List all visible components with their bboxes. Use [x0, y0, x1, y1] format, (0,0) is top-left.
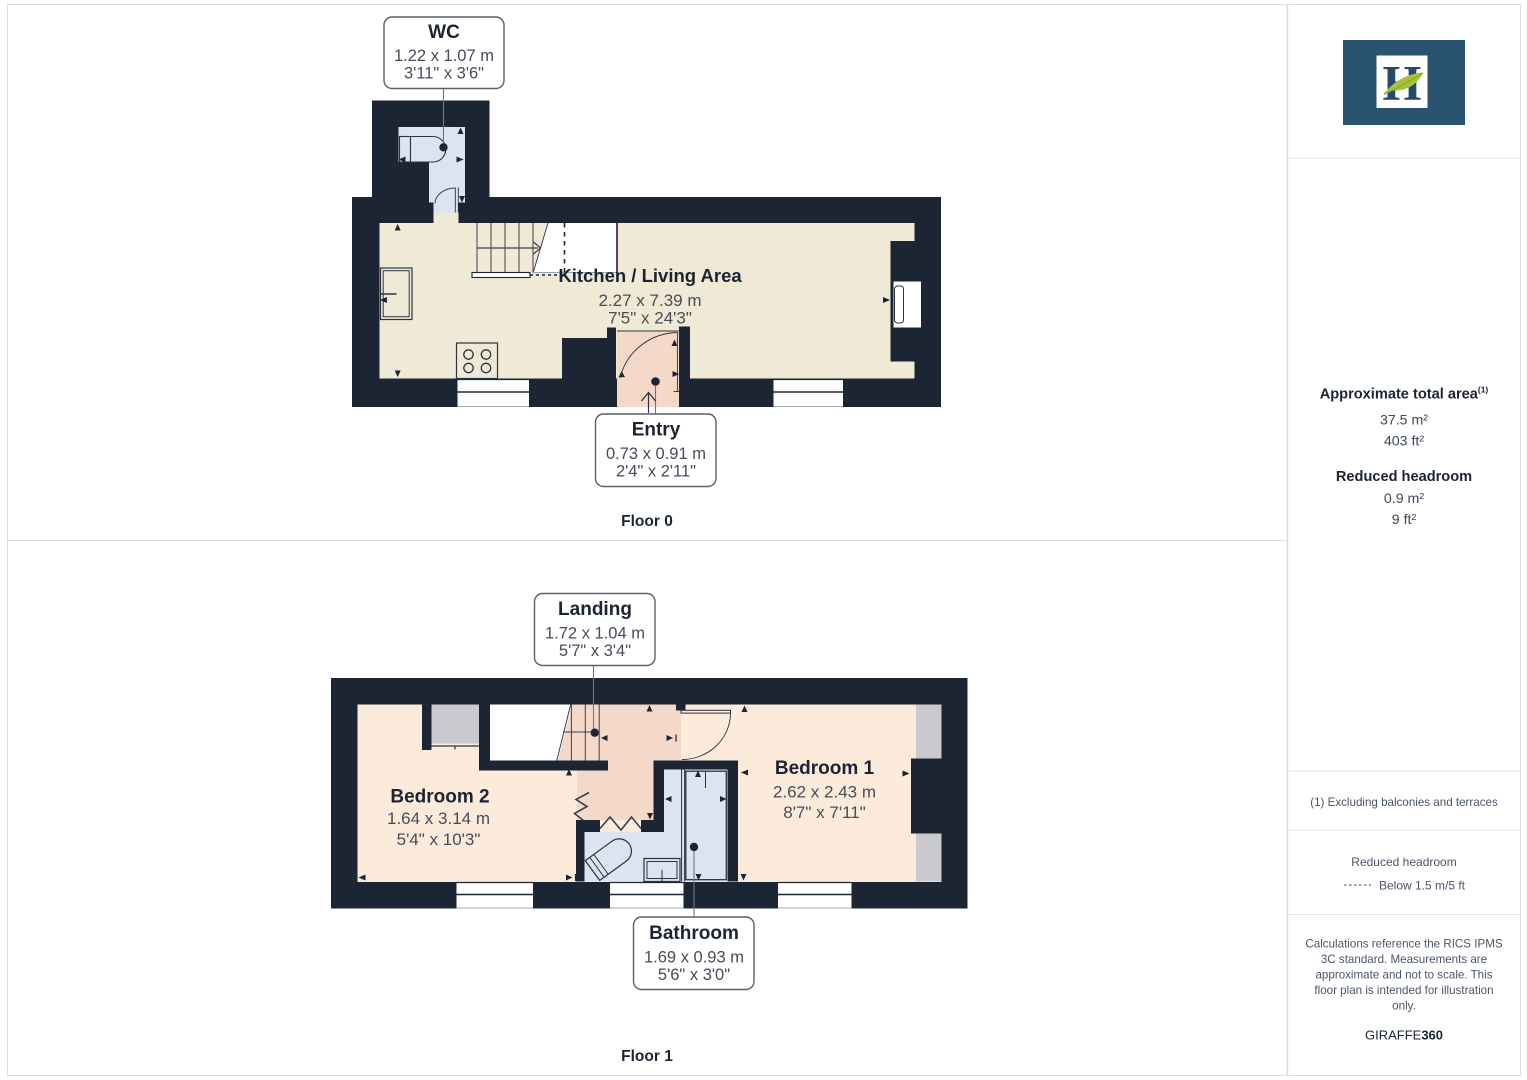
- svg-text:0.9 m²: 0.9 m²: [1384, 491, 1424, 507]
- svg-text:Reduced headroom: Reduced headroom: [1336, 469, 1472, 485]
- svg-text:8'7" x 7'11": 8'7" x 7'11": [783, 803, 866, 822]
- svg-text:Bedroom 2: Bedroom 2: [390, 787, 489, 808]
- svg-text:1.64 x 3.14 m: 1.64 x 3.14 m: [387, 809, 490, 828]
- svg-text:5'7" x 3'4": 5'7" x 3'4": [559, 642, 631, 660]
- svg-text:2.62 x 2.43 m: 2.62 x 2.43 m: [773, 783, 876, 802]
- svg-text:WC: WC: [428, 22, 460, 43]
- svg-text:Bathroom: Bathroom: [649, 923, 739, 944]
- svg-text:5'4" x 10'3": 5'4" x 10'3": [397, 830, 481, 849]
- svg-text:Reduced headroom: Reduced headroom: [1351, 855, 1456, 869]
- svg-text:2.27 x 7.39 m: 2.27 x 7.39 m: [598, 291, 701, 310]
- svg-text:3'11" x 3'6": 3'11" x 3'6": [404, 65, 484, 83]
- svg-text:GIRAFFE360: GIRAFFE360: [1365, 1028, 1443, 1043]
- svg-text:Entry: Entry: [632, 420, 681, 441]
- svg-text:(1) Excluding balconies and te: (1) Excluding balconies and terraces: [1310, 796, 1498, 809]
- svg-text:Approximate total area(1): Approximate total area(1): [1320, 385, 1489, 403]
- svg-text:Floor 1: Floor 1: [621, 1048, 673, 1065]
- svg-text:3C standard. Measurements are: 3C standard. Measurements are: [1321, 953, 1487, 966]
- svg-text:5'6" x 3'0": 5'6" x 3'0": [658, 966, 730, 984]
- svg-text:1.72 x 1.04 m: 1.72 x 1.04 m: [545, 625, 645, 643]
- svg-text:Landing: Landing: [558, 599, 632, 620]
- svg-text:Bedroom 1: Bedroom 1: [775, 758, 875, 779]
- svg-text:Floor 0: Floor 0: [621, 513, 673, 530]
- svg-text:403 ft²: 403 ft²: [1384, 434, 1424, 450]
- svg-text:7'5" x 24'3": 7'5" x 24'3": [608, 309, 692, 328]
- svg-text:9 ft²: 9 ft²: [1392, 512, 1417, 528]
- svg-text:floor plan is intended for ill: floor plan is intended for illustration: [1314, 984, 1493, 997]
- svg-text:only.: only.: [1392, 1000, 1416, 1013]
- svg-text:0.73 x 0.91 m: 0.73 x 0.91 m: [606, 445, 706, 463]
- svg-text:37.5 m²: 37.5 m²: [1380, 413, 1428, 429]
- svg-text:1.69 x 0.93 m: 1.69 x 0.93 m: [644, 949, 744, 967]
- svg-text:2'4" x 2'11": 2'4" x 2'11": [616, 463, 696, 481]
- svg-text:Kitchen / Living Area: Kitchen / Living Area: [558, 265, 742, 286]
- svg-text:1.22 x 1.07 m: 1.22 x 1.07 m: [394, 47, 494, 65]
- svg-text:approximate and not to scale.: approximate and not to scale. This: [1315, 969, 1492, 982]
- svg-text:Calculations reference the RIC: Calculations reference the RICS IPMS: [1305, 938, 1502, 951]
- svg-text:Below 1.5 m/5 ft: Below 1.5 m/5 ft: [1379, 879, 1466, 893]
